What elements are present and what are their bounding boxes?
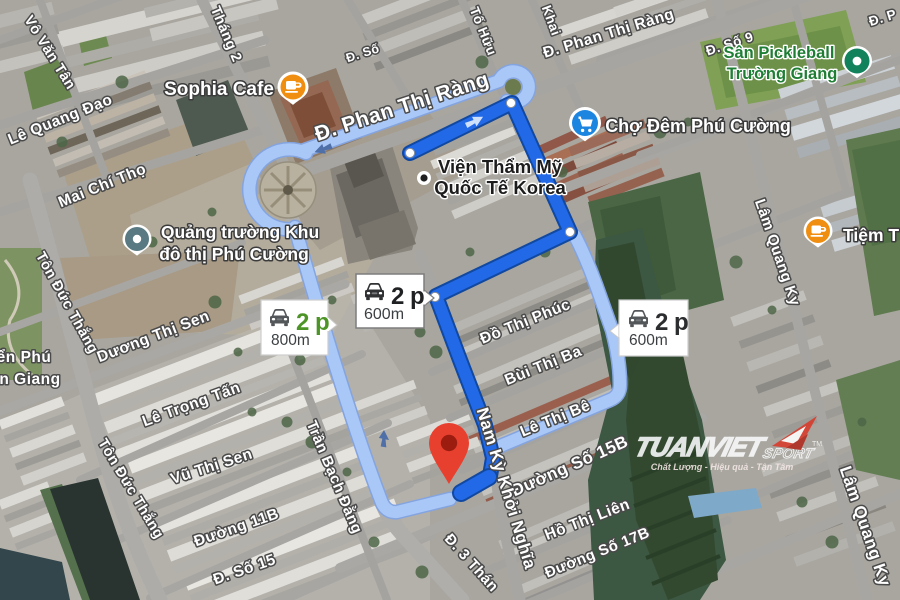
svg-text:ển Phú: ển Phú (0, 349, 51, 366)
svg-text:Viện Thẩm Mỹ: Viện Thẩm Mỹ (438, 156, 563, 177)
svg-text:n Giang: n Giang (0, 371, 61, 388)
svg-text:600m: 600m (629, 332, 668, 349)
svg-text:Quảng trường Khu: Quảng trường Khu (161, 222, 319, 242)
svg-text:Trường Giang: Trường Giang (727, 65, 838, 83)
svg-text:600m: 600m (364, 306, 404, 323)
svg-text:800m: 800m (271, 332, 310, 349)
svg-text:Quốc Tế Korea: Quốc Tế Korea (434, 177, 566, 198)
svg-text:TUANVIET: TUANVIET (632, 431, 770, 462)
svg-text:SPORT: SPORT (761, 446, 816, 462)
svg-text:đô thị Phú Cường: đô thị Phú Cường (159, 244, 309, 264)
svg-text:TM: TM (812, 441, 822, 448)
svg-text:Chợ Đêm Phú Cường: Chợ Đêm Phú Cường (605, 116, 791, 136)
svg-text:Sân Pickleball: Sân Pickleball (724, 44, 835, 62)
svg-text:Sophia Cafe: Sophia Cafe (164, 79, 274, 100)
svg-text:Tiệm T: Tiệm T (843, 225, 899, 245)
svg-text:Chất Lượng - Hiệu quả - Tận Tâ: Chất Lượng - Hiệu quả - Tận Tâm (651, 462, 793, 472)
